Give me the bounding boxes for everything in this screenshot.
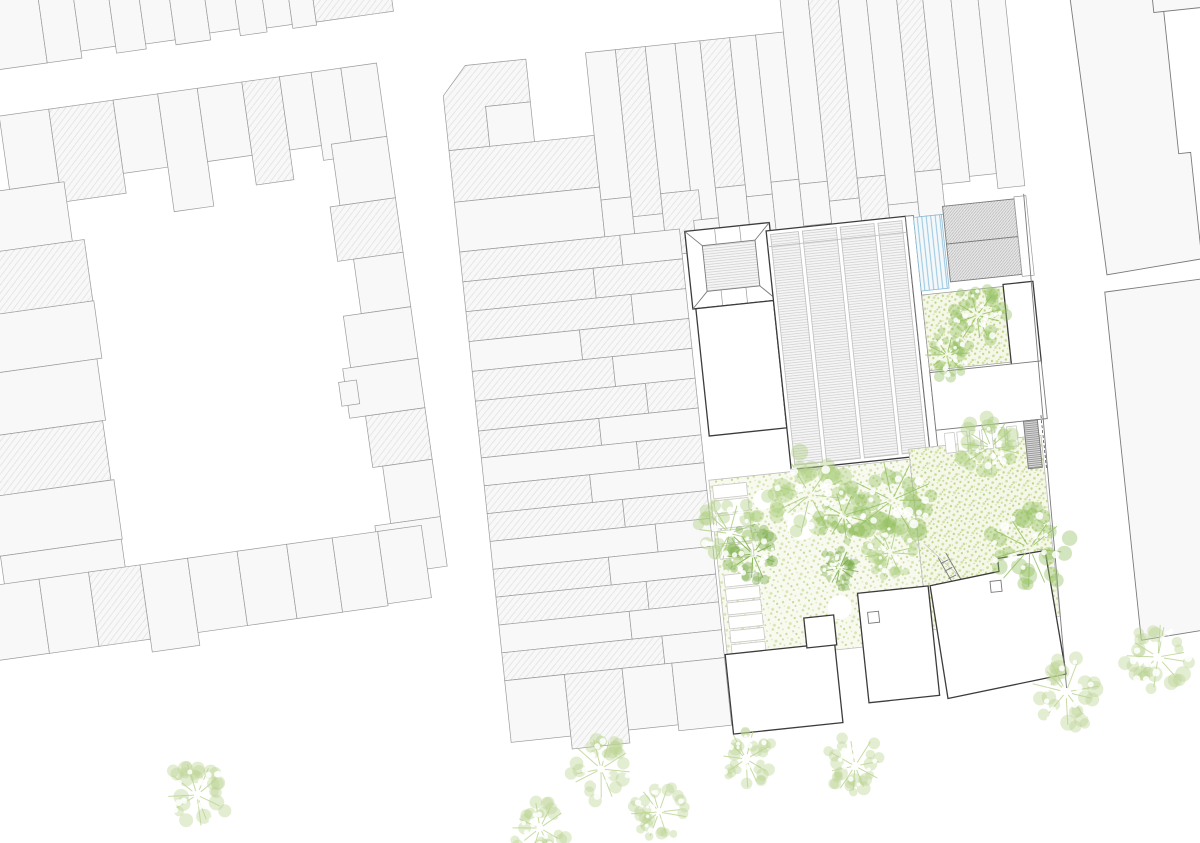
tree-foliage [584,786,594,796]
tree-highlight [848,776,854,782]
tree-highlight [550,821,555,826]
parking-stall [944,432,956,453]
tree-foliage [636,825,645,834]
tree-highlight [845,756,849,760]
new-building-south-west [725,643,843,734]
tree-highlight [533,813,537,817]
tree-highlight [1144,660,1151,667]
tree-highlight [847,753,851,757]
tree-highlight [587,765,591,769]
tree-foliage [669,830,677,838]
parcel [354,252,411,313]
tree-foliage [1069,720,1081,732]
tree-highlight [852,753,857,758]
tree-foliage [660,828,670,838]
tree-highlight [1045,680,1051,686]
tree-highlight [741,765,744,768]
tree-highlight [727,744,733,750]
parcel [505,674,571,742]
tree-foliage [530,796,543,809]
tree-foliage [733,766,741,774]
new-building-south-mid [858,586,940,703]
tree-highlight [849,757,853,761]
tree-highlight [1073,660,1078,665]
tree-foliage [1118,656,1132,670]
tree-highlight [1049,714,1057,722]
tree-highlight [841,764,847,770]
tree-highlight [656,824,659,827]
parcel [486,102,535,146]
parcel [343,307,418,368]
tree-highlight [198,779,205,786]
tree-highlight [1072,701,1078,707]
tree-foliage [524,809,533,818]
parcel [672,658,732,731]
tree-foliage [617,757,629,769]
terrace-strip [645,378,698,413]
tree-highlight [625,773,630,778]
tree-highlight [1050,707,1056,713]
tree-foliage [609,741,621,753]
tree-highlight [867,767,871,771]
tree-foliage [677,808,688,819]
tree-highlight [1075,684,1083,692]
tree-highlight [531,820,537,826]
tree-highlight [736,742,740,746]
tree-highlight [607,774,611,778]
tree-highlight [658,785,661,788]
tree-highlight [722,769,728,775]
tree-foliage [1146,683,1157,694]
tree-foliage [645,832,654,841]
tree-highlight [635,799,641,805]
parcel-hatched [89,565,151,647]
tree-highlight [521,821,526,826]
tree-highlight [748,737,753,742]
tree-highlight [205,772,211,778]
tree-highlight [838,757,843,762]
tree-foliage [666,782,677,793]
tree-highlight [653,790,659,796]
tree-highlight [172,807,178,813]
tree-foliage [1033,691,1047,705]
tree-highlight [1184,654,1192,662]
tree-highlight [1059,665,1065,671]
tree-highlight [594,743,600,749]
parcel [339,380,360,406]
tree-highlight [857,783,861,787]
tree-highlight [1088,681,1094,687]
metal-roof [943,199,1019,244]
tree-highlight [1161,640,1169,648]
tree-highlight [744,734,747,737]
parcel [799,181,831,226]
tree-highlight [1153,641,1157,645]
tree-highlight [841,748,848,755]
parcel-hatched [330,198,403,262]
tree-highlight [1045,688,1049,692]
tree-foliage [192,765,205,778]
tree-highlight [648,827,654,833]
tree-highlight [177,780,182,785]
tree-foliage [179,813,193,827]
tree-foliage [756,760,765,769]
tree-highlight [678,798,684,804]
tree-highlight [524,830,529,835]
tree-highlight [1134,647,1141,654]
tree-highlight [852,746,857,751]
metal-roof [946,237,1022,282]
tree-highlight [745,764,751,770]
tree-foliage [868,737,880,749]
tree-highlight [543,834,548,839]
tree-foliage [634,809,647,822]
tree-highlight [661,816,667,822]
hip-roof-core [702,240,760,291]
terrace-strip [631,289,689,325]
tree-foliage [211,776,225,790]
tree-foliage [741,778,753,790]
tree-highlight [645,824,649,828]
tree-highlight [646,805,649,808]
site-plan-canvas [0,0,1200,843]
tree-highlight [1130,657,1137,664]
parcel [383,459,441,523]
tree-highlight [650,804,655,809]
tree-highlight [198,801,205,808]
tree-highlight [605,778,610,783]
tree-highlight [602,757,606,761]
tree-highlight [736,746,739,749]
tree-highlight [1143,676,1149,682]
tree-foliage [1172,637,1183,648]
tree-highlight [746,743,752,749]
tree-highlight [1152,669,1160,677]
tree-highlight [599,738,606,745]
tree-foliage [167,765,179,777]
tree-foliage [1147,625,1159,637]
tree-foliage [609,781,622,794]
tree-foliage [1134,628,1144,638]
parcel-hatched [366,408,433,468]
tree-highlight [761,740,766,745]
site-plan-svg [0,0,1200,843]
tree-foliage [1078,690,1093,705]
parcel-hatched [857,175,890,223]
tree-foliage [751,745,763,757]
tree-foliage [849,788,858,797]
tree-highlight [181,797,188,804]
tree-highlight [1084,709,1092,717]
tree-highlight [646,815,650,819]
tree-highlight [1169,628,1174,633]
tree-highlight [561,815,566,820]
tree-foliage [541,797,553,809]
tree-highlight [1044,698,1049,703]
tree-highlight [193,804,198,809]
tree-highlight [717,752,724,759]
tree-highlight [1133,675,1140,682]
parcel [331,136,395,205]
tree-highlight [536,812,542,818]
tree-highlight [209,817,216,824]
tree-highlight [593,779,597,783]
parcel [915,169,946,216]
tree-highlight [214,771,220,777]
parcel [622,663,678,730]
existing-building [696,301,787,436]
tree-foliage [756,775,767,786]
tree-highlight [594,793,601,800]
new-building-annex [804,615,837,648]
tree-foliage [209,795,225,811]
tree-highlight [590,752,595,757]
tree-highlight [872,759,877,764]
tree-highlight [187,770,192,775]
